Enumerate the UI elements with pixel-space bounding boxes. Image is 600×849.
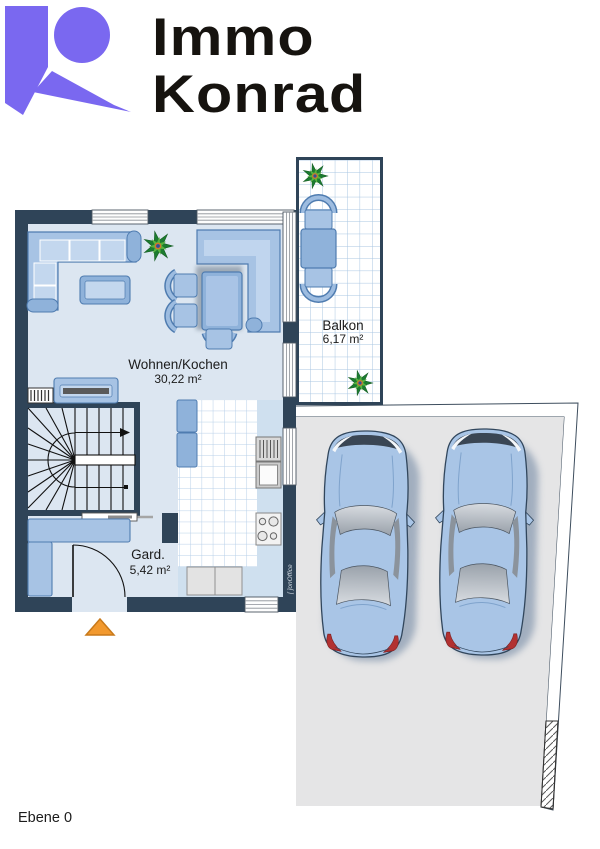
kitchen-cabinet [215,567,242,595]
balcony-chair [305,268,332,287]
car-1 [313,430,421,662]
balcony: Balkon 6,17 m² [296,157,383,405]
tv-sideboard [54,378,118,403]
radiator [28,388,53,403]
floor-plan-image: Immo Konrad Balkon 6,17 m² [0,0,600,849]
logo-text-line1: Immo [152,7,315,66]
stove-icon [256,513,281,545]
sofa-armrest [27,299,58,312]
entrance-marker [86,619,114,635]
kitchen-cabinet [187,567,215,595]
gard-label: Gard. [131,547,165,562]
balcony-table [301,229,336,268]
car-2 [432,428,540,660]
fridge-cabinet [177,400,197,432]
balcony-area: 6,17 m² [323,332,364,346]
brand-logo: Immo Konrad [5,6,366,123]
level-label: Ebene 0 [18,810,72,826]
parking-area [294,403,578,815]
bench-end [246,318,262,332]
balcony-table-set [301,197,336,299]
interior-wall [162,513,178,543]
coffee-table [80,276,130,304]
kitchen [177,400,283,597]
logo-text-line2: Konrad [152,64,366,123]
balcony-chair [305,210,332,229]
living-label: Wohnen/Kochen [128,357,228,372]
balcony-label: Balkon [322,318,363,333]
logo-mark [5,6,131,115]
watermark: [ ]onOffice [287,564,294,595]
sofa-armrest [127,231,141,262]
fridge-cabinet [177,433,197,467]
apartment: [ ]onOffice Wohnen/Kochen 30,22 m² Gard.… [15,210,296,612]
page: Immo Konrad Balkon 6,17 m² [0,0,600,849]
dining-chair [205,329,234,349]
living-area: 30,22 m² [154,372,201,386]
dining-table [202,272,242,330]
gard-area: 5,42 m² [130,563,171,577]
